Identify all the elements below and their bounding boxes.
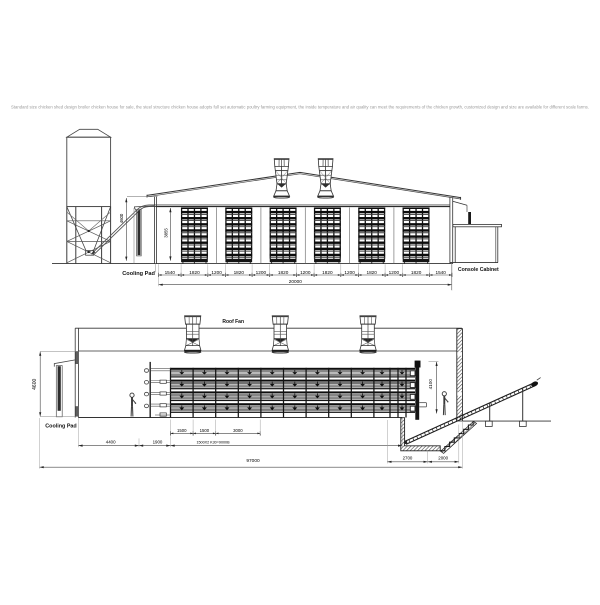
svg-text:4100: 4100 xyxy=(428,379,433,390)
svg-text:20000: 20000 xyxy=(289,279,302,284)
svg-text:2000: 2000 xyxy=(438,456,448,461)
svg-text:1900: 1900 xyxy=(153,440,163,445)
svg-text:1500: 1500 xyxy=(200,428,210,433)
svg-text:1200: 1200 xyxy=(344,270,355,275)
svg-text:Standard size chicken shed des: Standard size chicken shed design broile… xyxy=(11,105,589,110)
svg-text:1820: 1820 xyxy=(322,270,333,275)
svg-text:1500: 1500 xyxy=(177,428,187,433)
svg-text:1820: 1820 xyxy=(278,270,289,275)
svg-text:97000: 97000 xyxy=(246,458,260,464)
svg-text:2700: 2700 xyxy=(403,456,413,461)
svg-text:3855: 3855 xyxy=(163,228,168,238)
svg-text:1820: 1820 xyxy=(189,270,200,275)
svg-text:1200: 1200 xyxy=(256,270,267,275)
svg-text:Console Cabinet: Console Cabinet xyxy=(458,267,499,273)
svg-text:1200: 1200 xyxy=(300,270,311,275)
svg-text:4600: 4600 xyxy=(32,379,38,390)
svg-text:1820: 1820 xyxy=(366,270,377,275)
svg-text:Cooling Pad: Cooling Pad xyxy=(122,271,155,277)
svg-text:1200: 1200 xyxy=(211,270,222,275)
svg-text:1200: 1200 xyxy=(389,270,400,275)
svg-text:1500X2 K30=9000B: 1500X2 K30=9000B xyxy=(196,441,230,445)
svg-text:Roof Fan: Roof Fan xyxy=(222,319,244,325)
svg-text:4400: 4400 xyxy=(106,440,116,445)
svg-text:Cooling Pad: Cooling Pad xyxy=(45,423,76,429)
svg-text:4600: 4600 xyxy=(119,213,124,223)
svg-text:1540: 1540 xyxy=(165,270,176,275)
svg-text:1540: 1540 xyxy=(435,270,446,275)
svg-text:1820: 1820 xyxy=(411,270,422,275)
svg-text:3000: 3000 xyxy=(233,428,243,433)
svg-text:1820: 1820 xyxy=(234,270,245,275)
